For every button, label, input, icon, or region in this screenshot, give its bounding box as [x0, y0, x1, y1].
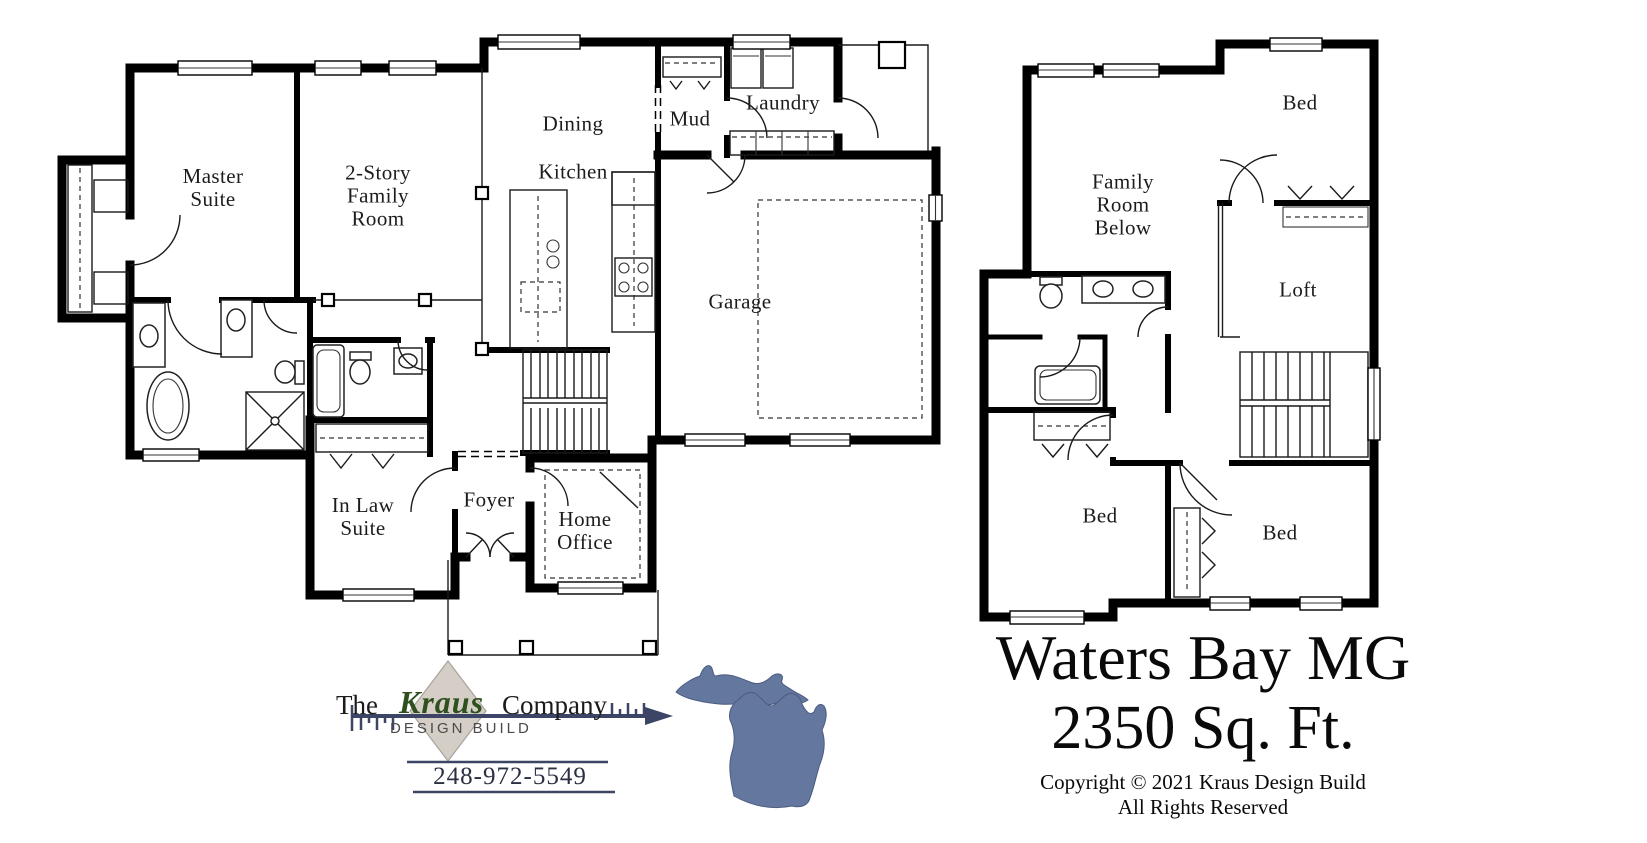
room-label-mud: Mud: [670, 108, 711, 131]
second-floor-plan: [984, 38, 1380, 624]
room-label-laundry: Laundry: [746, 92, 820, 115]
room-label-family-room: 2-Story Family Room: [345, 162, 411, 231]
room-label-foyer: Foyer: [464, 489, 515, 512]
room-label-family-room-below: Family Room Below: [1092, 171, 1154, 240]
plan-copyright: Copyright © 2021 Kraus Design Build: [1040, 771, 1366, 793]
plan-drawing: [0, 0, 1647, 843]
room-label-dining: Dining: [543, 113, 604, 136]
room-label-home-office: Home Office: [557, 508, 613, 554]
floor-plan-sheet: Master Suite 2-Story Family Room Dining …: [0, 0, 1647, 843]
logo-tagline: DESIGN BUILD: [390, 720, 532, 737]
room-label-bed-right: Bed: [1262, 522, 1297, 545]
first-floor-plan: [62, 35, 942, 655]
plan-title: Waters Bay MG: [996, 624, 1410, 691]
logo-phone: 248-972-5549: [400, 763, 620, 791]
michigan-icon: [676, 666, 826, 808]
room-label-in-law-suite: In Law Suite: [332, 494, 394, 540]
plan-area: 2350 Sq. Ft.: [1051, 696, 1354, 761]
room-label-loft: Loft: [1279, 279, 1317, 302]
logo-prefix: The: [336, 690, 378, 721]
logo-brand: Kraus: [399, 684, 484, 721]
logo-suffix: Company: [502, 690, 607, 721]
plan-rights: All Rights Reserved: [1118, 796, 1288, 818]
room-label-bed-upper: Bed: [1282, 92, 1317, 115]
room-label-master-suite: Master Suite: [183, 165, 244, 211]
room-label-garage: Garage: [708, 291, 771, 314]
room-label-kitchen: Kitchen: [538, 161, 607, 184]
room-label-bed-left: Bed: [1082, 505, 1117, 528]
